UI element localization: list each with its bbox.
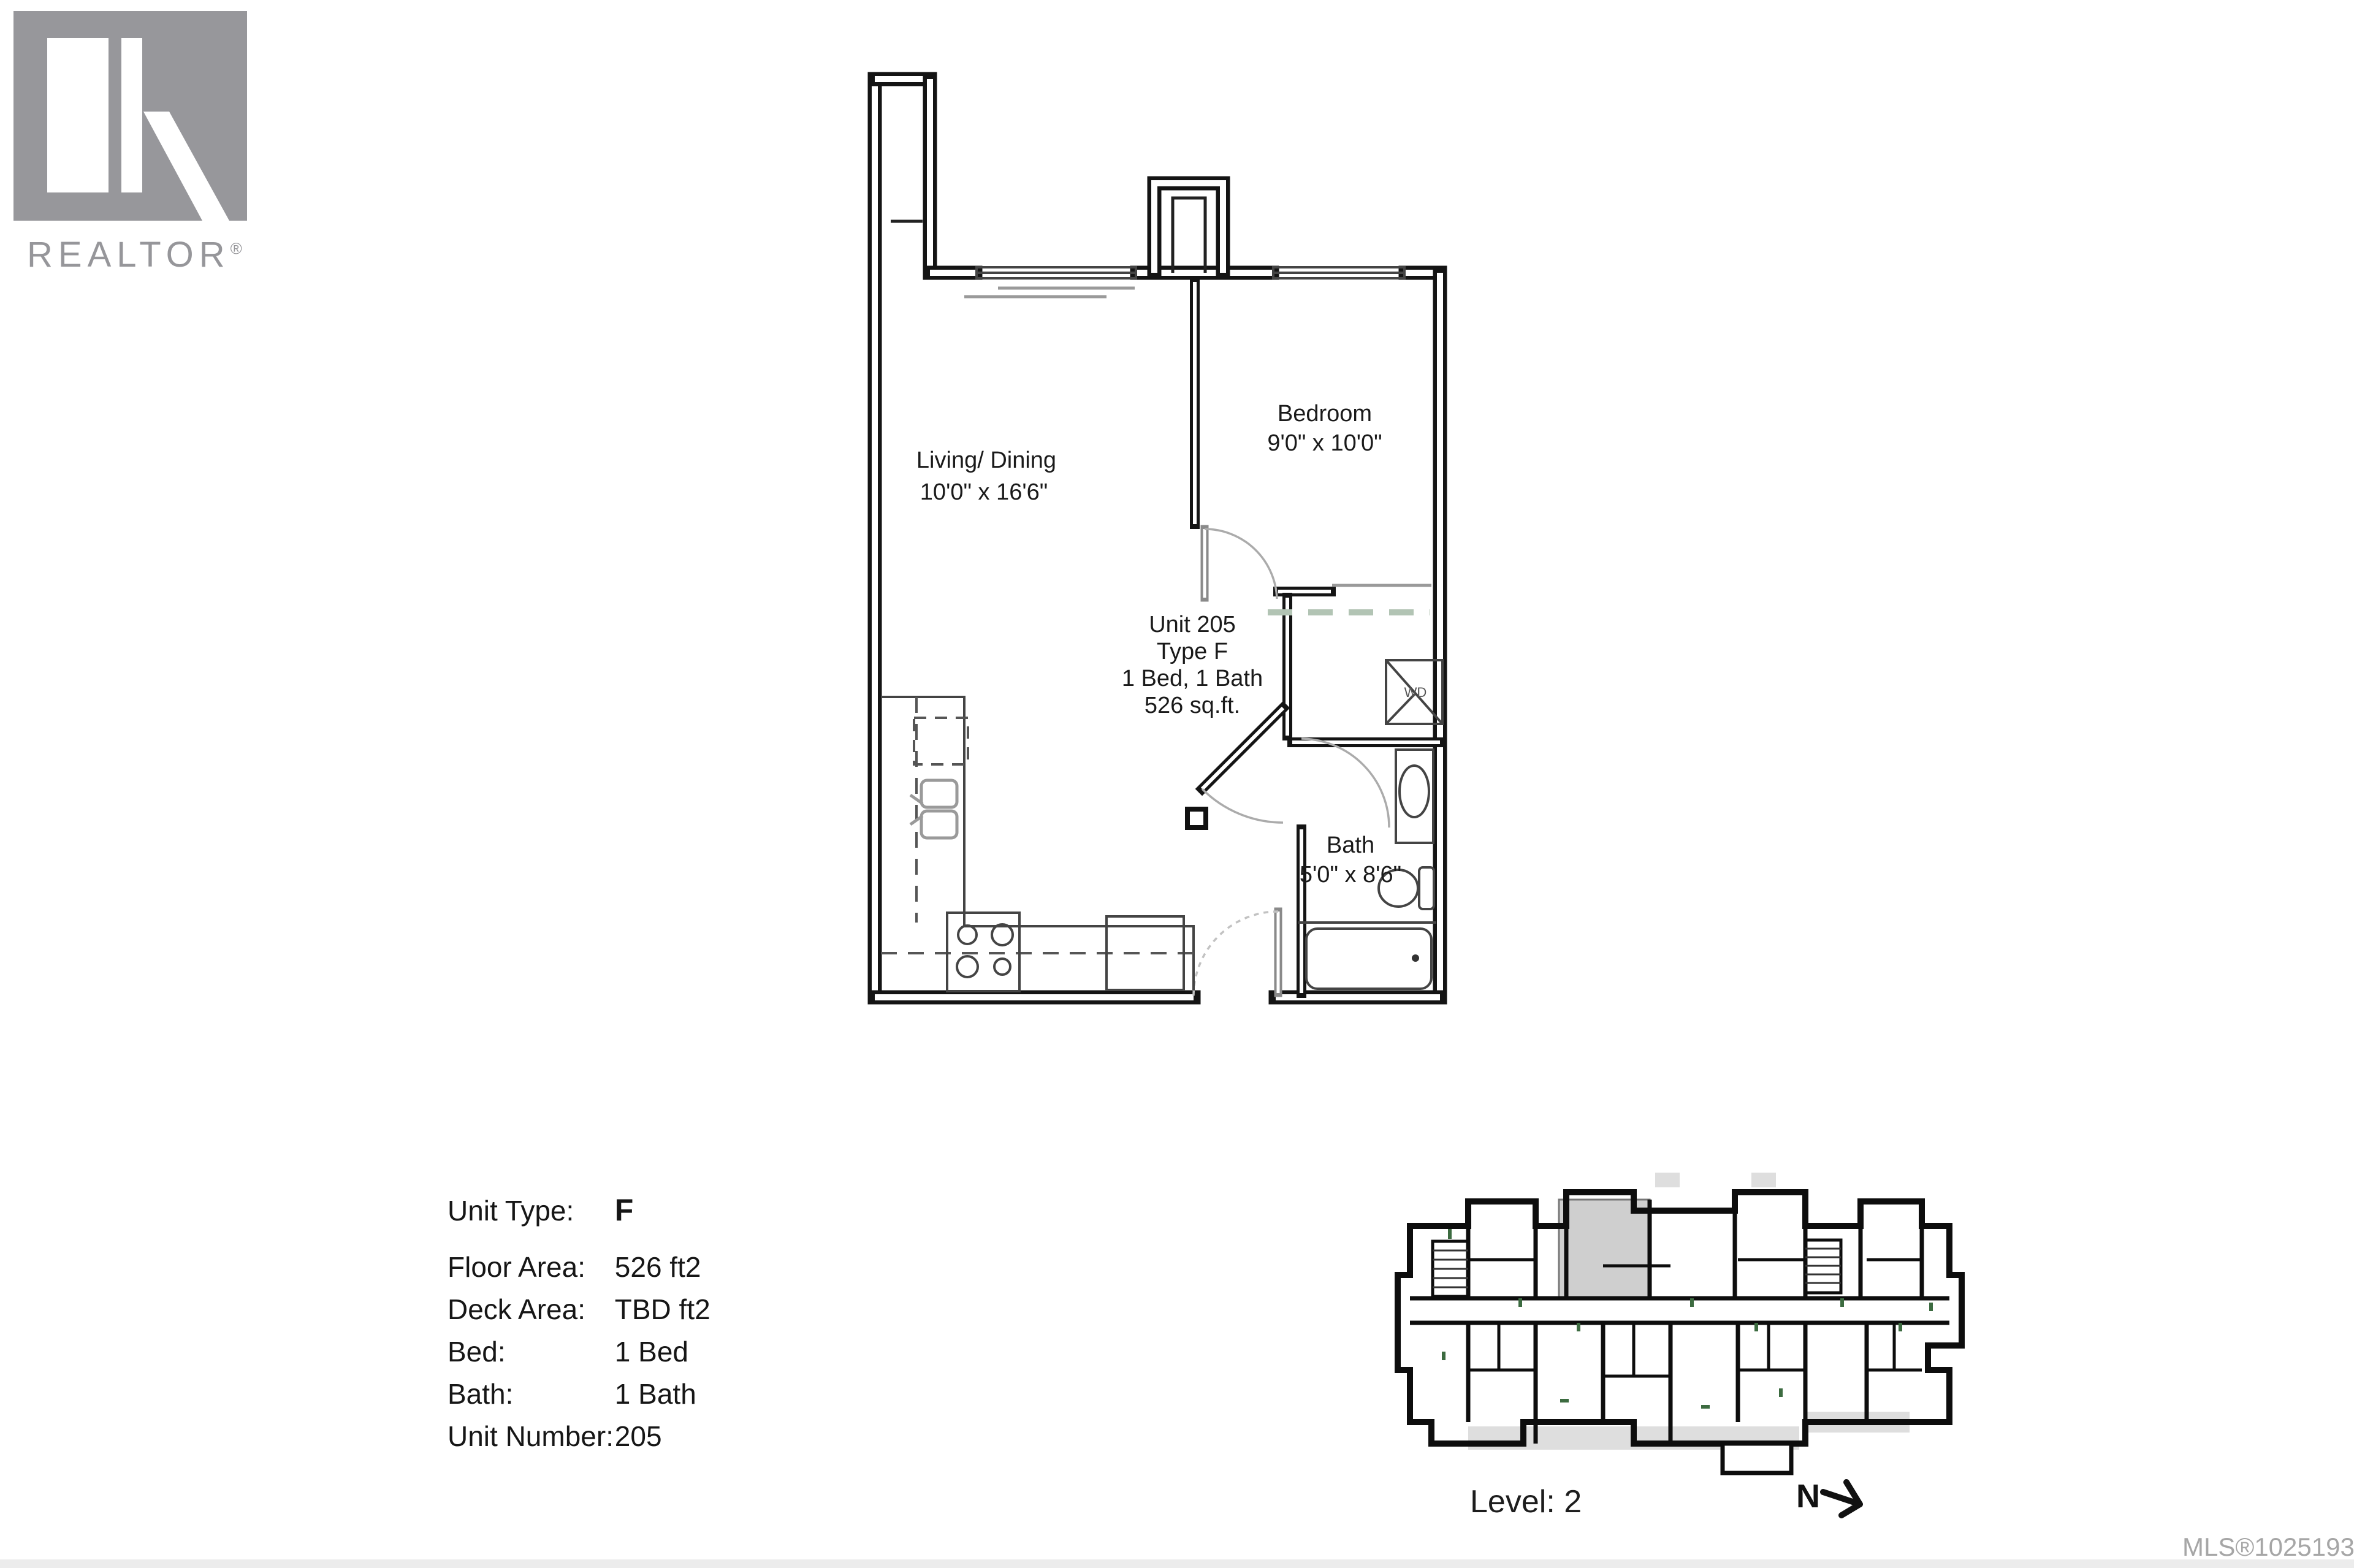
unit-label-bedbath: 1 Bed, 1 Bath <box>1122 666 1263 691</box>
info-row-unit-type: Unit Type: F <box>448 1194 913 1227</box>
key-plan-level-label: Level: 2 <box>1470 1483 1582 1520</box>
floor-plan: Living/ Dining 10'0" x 16'6" Bedroom 9'0… <box>866 70 1455 1027</box>
registered-mark-symbol: ® <box>230 240 242 258</box>
bath-dimensions: 5'0" x 8'6" <box>1300 862 1401 888</box>
info-label: Unit Type: <box>448 1195 607 1227</box>
bedroom-label: Bedroom <box>1278 401 1372 427</box>
north-letter: N <box>1796 1477 1820 1515</box>
washer-dryer-label: WD <box>1404 685 1427 700</box>
info-value: F <box>615 1194 634 1226</box>
info-value: TBD ft2 <box>615 1293 710 1325</box>
realtor-logo-icon <box>12 9 270 229</box>
info-row-floor-area: Floor Area: 526 ft2 <box>448 1251 913 1283</box>
info-row-bed: Bed: 1 Bed <box>448 1336 913 1368</box>
info-row-unit-number: Unit Number: 205 <box>448 1420 913 1452</box>
info-label: Deck Area: <box>448 1293 607 1325</box>
info-label: Bed: <box>448 1336 607 1368</box>
bath-label: Bath <box>1327 832 1374 858</box>
info-label: Bath: <box>448 1378 607 1410</box>
mls-number: MLS®1025193 <box>2182 1532 2336 1562</box>
info-value: 205 <box>615 1420 662 1452</box>
north-arrow: N <box>1796 1469 1882 1536</box>
info-row-deck-area: Deck Area: TBD ft2 <box>448 1293 913 1325</box>
realtor-logo: REALTOR® <box>12 9 282 278</box>
info-value: 1 Bed <box>615 1336 688 1368</box>
building-key-plan <box>1376 1168 1983 1477</box>
bedroom-dimensions: 9'0" x 10'0" <box>1267 430 1382 456</box>
unit-label-number: Unit 205 <box>1149 612 1236 637</box>
unit-label-area: 526 sq.ft. <box>1145 693 1240 718</box>
realtor-wordmark: REALTOR® <box>27 234 242 275</box>
north-arrow-icon <box>1819 1469 1881 1530</box>
floor-plan-walls <box>875 79 1440 997</box>
info-row-bath: Bath: 1 Bath <box>448 1378 913 1410</box>
floor-plan-drawing: Living/ Dining 10'0" x 16'6" Bedroom 9'0… <box>866 70 1455 1027</box>
unit-info-panel: Unit Type: F Floor Area: 526 ft2 Deck Ar… <box>448 1194 913 1463</box>
info-label: Unit Number: <box>448 1420 607 1452</box>
info-value: 1 Bath <box>615 1378 696 1410</box>
living-dining-label: Living/ Dining <box>916 447 1056 473</box>
key-plan-drawing <box>1376 1168 1983 1477</box>
unit-label-type: Type F <box>1157 639 1228 664</box>
listing-floor-plan-page: REALTOR® <box>0 0 2354 1568</box>
bottom-strip <box>0 1559 2354 1568</box>
info-value: 526 ft2 <box>615 1251 701 1283</box>
info-label: Floor Area: <box>448 1251 607 1283</box>
living-dining-dimensions: 10'0" x 16'6" <box>920 479 1048 505</box>
